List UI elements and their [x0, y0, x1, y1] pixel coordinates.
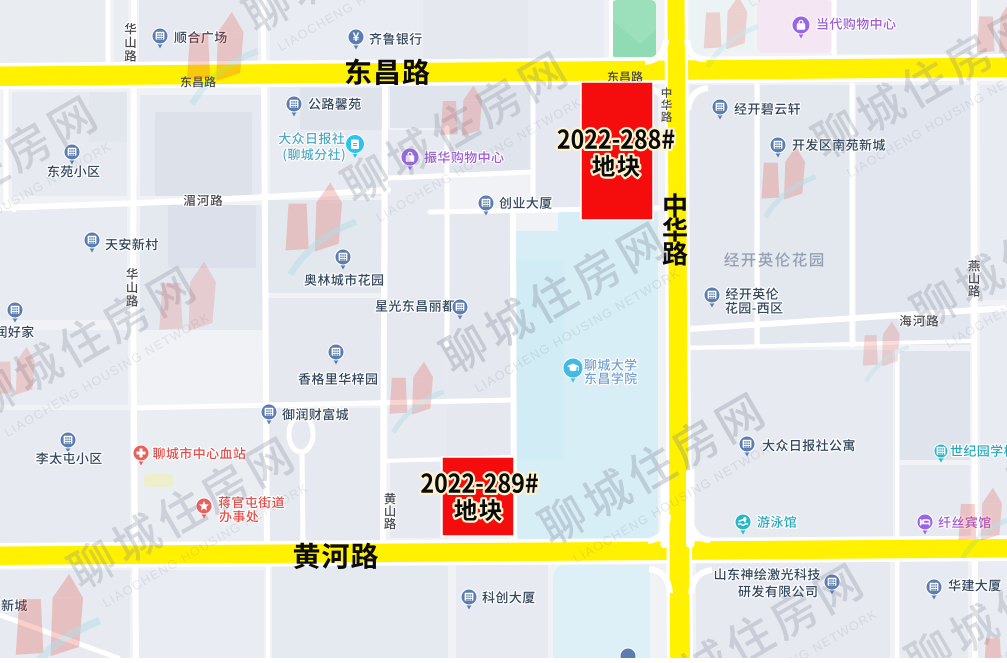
- svg-text:¥: ¥: [353, 30, 360, 44]
